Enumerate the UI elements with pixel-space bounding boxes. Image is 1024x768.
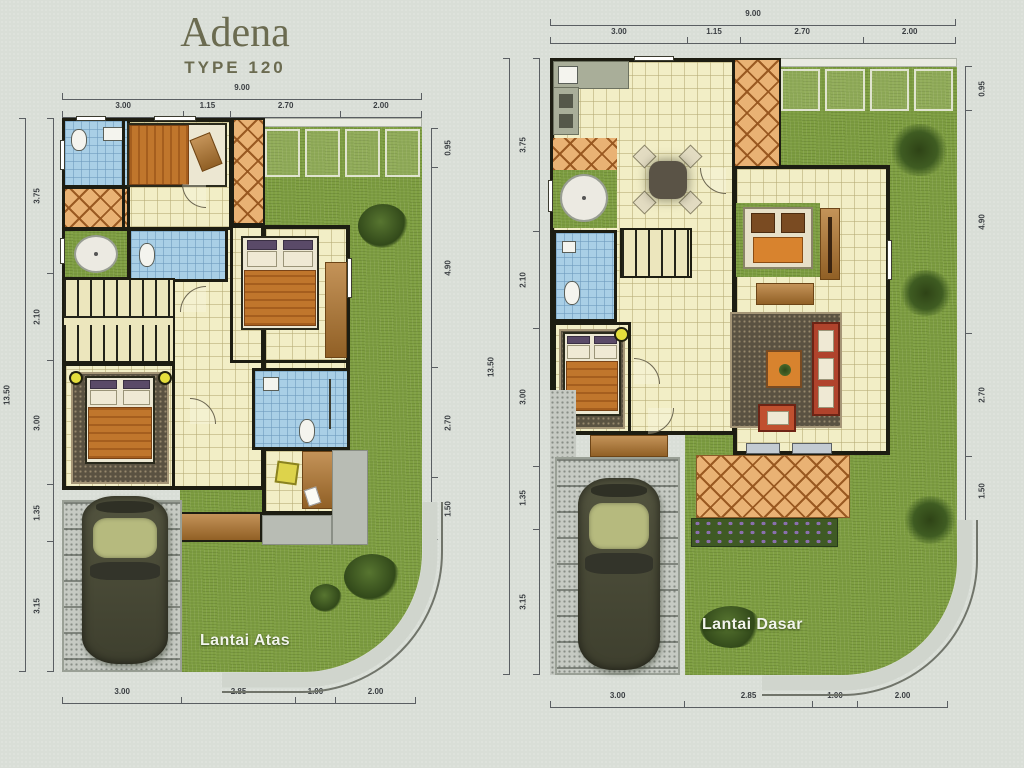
- dimension-line: 3.001.152.702.00: [550, 26, 956, 44]
- dimension-segment: 2.70: [230, 111, 339, 118]
- dimension-value: 3.75: [519, 137, 528, 153]
- dimension-value: 1.35: [33, 505, 42, 521]
- dimension-value: 0.95: [443, 140, 452, 156]
- dimension-segment: 3.00: [533, 328, 540, 466]
- vanity-room: [62, 228, 130, 280]
- dimension-segment: 3.00: [550, 37, 687, 44]
- pillow: [123, 380, 150, 389]
- dimension-segment: 3.15: [47, 541, 54, 672]
- toilet: [299, 419, 315, 443]
- window: [154, 116, 196, 121]
- dimension-value: 3.00: [519, 390, 528, 406]
- cabinet-groove: [828, 217, 832, 273]
- car: [82, 496, 168, 664]
- lawn-paver: [305, 129, 340, 177]
- palm-plant: [902, 496, 958, 544]
- table-center: [582, 196, 586, 200]
- toilet: [139, 243, 155, 267]
- site-upper: Lantai Atas: [62, 118, 422, 672]
- lawn-paver: [914, 69, 953, 111]
- lawn-paver: [870, 69, 909, 111]
- patio: [696, 455, 850, 518]
- bathroom: [62, 118, 130, 188]
- sofa-cushion: [751, 213, 775, 233]
- dimension-segment: 13.50: [503, 58, 510, 675]
- window: [887, 240, 892, 280]
- dining-set: [632, 144, 704, 216]
- dimension-value: 3.00: [611, 27, 627, 36]
- dimension-line: 3.752.103.001.353.15: [522, 58, 540, 675]
- dimension-segment: 3.15: [533, 529, 540, 675]
- window: [60, 238, 65, 264]
- floor-plan-document: { "title": { "name": "Adena", "type": "T…: [0, 0, 1024, 768]
- dimension-value: 4.90: [443, 260, 452, 276]
- dimension-value: 2.70: [443, 415, 452, 431]
- plan-label: Lantai Atas: [200, 632, 290, 650]
- dimension-segment: 2.10: [47, 273, 54, 360]
- dimension-value: 2.70: [794, 27, 810, 36]
- sofa-seat: [753, 237, 803, 263]
- stair-landing: [64, 316, 173, 325]
- dimension-value: 3.15: [519, 594, 528, 610]
- site-ground: Lantai Dasar: [550, 58, 957, 675]
- toilet: [71, 129, 87, 151]
- dimension-value: 13.50: [486, 356, 495, 376]
- stove: [559, 94, 573, 108]
- bedroom: [122, 118, 232, 230]
- balcony-tile: [232, 118, 265, 225]
- patio: [262, 515, 332, 545]
- toilet: [564, 281, 580, 305]
- dimension-value: 9.00: [745, 9, 761, 18]
- window: [60, 140, 65, 170]
- window: [347, 258, 352, 298]
- stove: [559, 114, 573, 128]
- dimension-segment: 2.70: [965, 333, 972, 456]
- car-roof: [93, 518, 157, 558]
- desk-chair: [275, 461, 300, 486]
- sofa-cushion: [818, 386, 834, 408]
- sofa-cushion: [818, 330, 834, 352]
- armchair: [758, 404, 796, 432]
- dimension-value: 1.35: [519, 490, 528, 506]
- lawn-paver: [345, 129, 380, 177]
- window: [548, 180, 553, 212]
- kitchen-counter: [553, 87, 579, 135]
- car-windshield: [585, 553, 652, 574]
- dimension-value: 13.50: [2, 385, 11, 405]
- bed-side-table: [189, 132, 222, 172]
- palm-plant: [888, 124, 950, 176]
- dimension-line: 9.00: [62, 86, 422, 100]
- wardrobe: [325, 262, 347, 358]
- dimension-value: 2.00: [373, 101, 389, 110]
- ground-floor-plan: 9.00 3.001.152.702.00 13.50 3.752.103.00…: [512, 0, 1024, 768]
- bathroom: [252, 368, 350, 450]
- sofa: [743, 207, 813, 269]
- dimension-segment: 4.90: [431, 167, 438, 366]
- dimension-segment: 2.10: [533, 231, 540, 328]
- dimension-segment: 0.95: [431, 128, 438, 167]
- dimension-segment: 1.15: [687, 37, 740, 44]
- car-trunk: [591, 484, 647, 497]
- bedroom: [230, 225, 350, 363]
- sofa-cushion: [818, 358, 834, 380]
- pillow: [90, 380, 117, 389]
- dimension-segment: 1.35: [533, 466, 540, 529]
- dimension-value: 3.75: [33, 188, 42, 204]
- window-sill: [746, 443, 780, 454]
- sofa-cushion: [781, 213, 805, 233]
- dimension-segment: 9.00: [550, 19, 956, 26]
- dimension-segment: 1.35: [47, 484, 54, 540]
- pillow: [567, 336, 590, 344]
- bush: [344, 554, 400, 600]
- dimension-value: 2.70: [977, 387, 986, 403]
- dimension-segment: 3.00: [62, 697, 181, 704]
- car: [578, 478, 660, 670]
- pillow: [123, 390, 150, 405]
- dimension-segment: 2.00: [340, 111, 422, 118]
- pillow: [247, 251, 277, 267]
- table-plant: [779, 364, 791, 376]
- dimension-value: 3.00: [33, 415, 42, 431]
- car-windshield: [90, 562, 161, 580]
- stairs: [620, 228, 692, 278]
- pillow: [567, 345, 590, 359]
- terracotta-tile: [553, 138, 617, 170]
- dimension-segment: 2.70: [740, 37, 863, 44]
- dimension-value: 3.00: [610, 691, 626, 700]
- bed-blanket: [244, 270, 316, 326]
- console-cabinet: [756, 283, 814, 305]
- dimension-value: 9.00: [234, 83, 250, 92]
- sink: [562, 241, 576, 253]
- bush: [358, 204, 408, 248]
- dimension-segment: 2.00: [863, 37, 956, 44]
- lamp: [158, 371, 172, 385]
- dimension-segment: 3.00: [550, 701, 684, 708]
- shower-screen: [329, 379, 331, 429]
- dimension-segment: 4.90: [965, 110, 972, 333]
- bed: [85, 376, 155, 464]
- dimension-line: 13.50: [8, 118, 26, 672]
- vanity-center: [94, 252, 98, 256]
- car-trunk: [96, 501, 155, 513]
- dimension-value: 3.00: [114, 687, 130, 696]
- pillow: [283, 240, 313, 250]
- pillow: [247, 240, 277, 250]
- bush: [310, 584, 342, 612]
- fence: [262, 118, 422, 127]
- dimension-segment: 2.70: [431, 367, 438, 477]
- dimension-value: 2.00: [902, 27, 918, 36]
- pillow: [283, 251, 313, 267]
- dimension-line: 0.954.902.701.50: [965, 66, 983, 526]
- kitchen-sink: [558, 66, 578, 84]
- dimension-value: 3.15: [33, 599, 42, 615]
- bathroom: [553, 230, 617, 322]
- dimension-line: 13.50: [492, 58, 510, 675]
- patio: [332, 450, 368, 545]
- garden-pavers: [781, 69, 953, 111]
- flower-bed: [691, 518, 838, 547]
- upper-floor-plan: 9.00 3.001.152.702.00 13.50 3.752.103.00…: [0, 0, 512, 768]
- dimension-segment: 3.75: [47, 118, 54, 273]
- window: [634, 56, 674, 61]
- sink: [263, 377, 279, 391]
- terracotta-tile: [62, 186, 130, 230]
- dining-table: [649, 161, 687, 199]
- dimension-segment: 0.95: [965, 66, 972, 110]
- dimension-segment: 9.00: [62, 93, 422, 100]
- dimension-value: 4.90: [977, 214, 986, 230]
- dimension-line: 9.00: [550, 12, 956, 26]
- coffee-table: [766, 350, 802, 388]
- bed: [241, 236, 319, 330]
- fence: [778, 58, 957, 67]
- car-roof: [589, 503, 650, 549]
- bed-blanket: [88, 407, 152, 459]
- bedroom: [62, 363, 175, 490]
- sofa-cushion: [767, 411, 789, 425]
- dimension-value: 0.95: [977, 81, 986, 97]
- dimension-segment: 3.00: [47, 360, 54, 484]
- dimension-value: 2.85: [741, 691, 757, 700]
- bathroom: [128, 228, 228, 282]
- sink: [103, 127, 123, 141]
- garden-pavers: [265, 129, 420, 177]
- kitchen-counter: [553, 61, 629, 89]
- dimension-value: 3.00: [115, 101, 131, 110]
- dimension-value: 2.70: [278, 101, 294, 110]
- bed-blanket: [129, 125, 189, 185]
- bed: [127, 123, 227, 187]
- inner-garden: [736, 203, 820, 277]
- lawn-paver: [781, 69, 820, 111]
- window: [76, 116, 106, 121]
- dimension-line: 3.752.103.001.353.15: [36, 118, 54, 672]
- garden-nook: [553, 170, 617, 228]
- stairs: [62, 278, 175, 363]
- plan-label: Lantai Dasar: [702, 616, 803, 634]
- dimension-value: 2.10: [519, 272, 528, 288]
- sofa: [812, 322, 840, 416]
- window-sill: [792, 443, 832, 454]
- dimension-line: 3.001.152.702.00: [62, 100, 422, 118]
- dimension-value: 1.15: [200, 101, 216, 110]
- console-cabinet: [820, 208, 840, 280]
- planter-box: [590, 435, 668, 457]
- lawn-paver: [385, 129, 420, 177]
- dimension-value: 2.10: [33, 309, 42, 325]
- lawn-paver: [825, 69, 864, 111]
- pillow: [594, 345, 617, 359]
- dimension-segment: 13.50: [19, 118, 26, 672]
- palm-plant: [898, 270, 954, 316]
- lamp: [69, 371, 83, 385]
- lawn-paver: [265, 129, 300, 177]
- entry-porch: [733, 58, 781, 168]
- dimension-value: 1.15: [706, 27, 722, 36]
- dimension-segment: 3.75: [533, 58, 540, 231]
- lamp: [614, 327, 629, 342]
- pillow: [90, 390, 117, 405]
